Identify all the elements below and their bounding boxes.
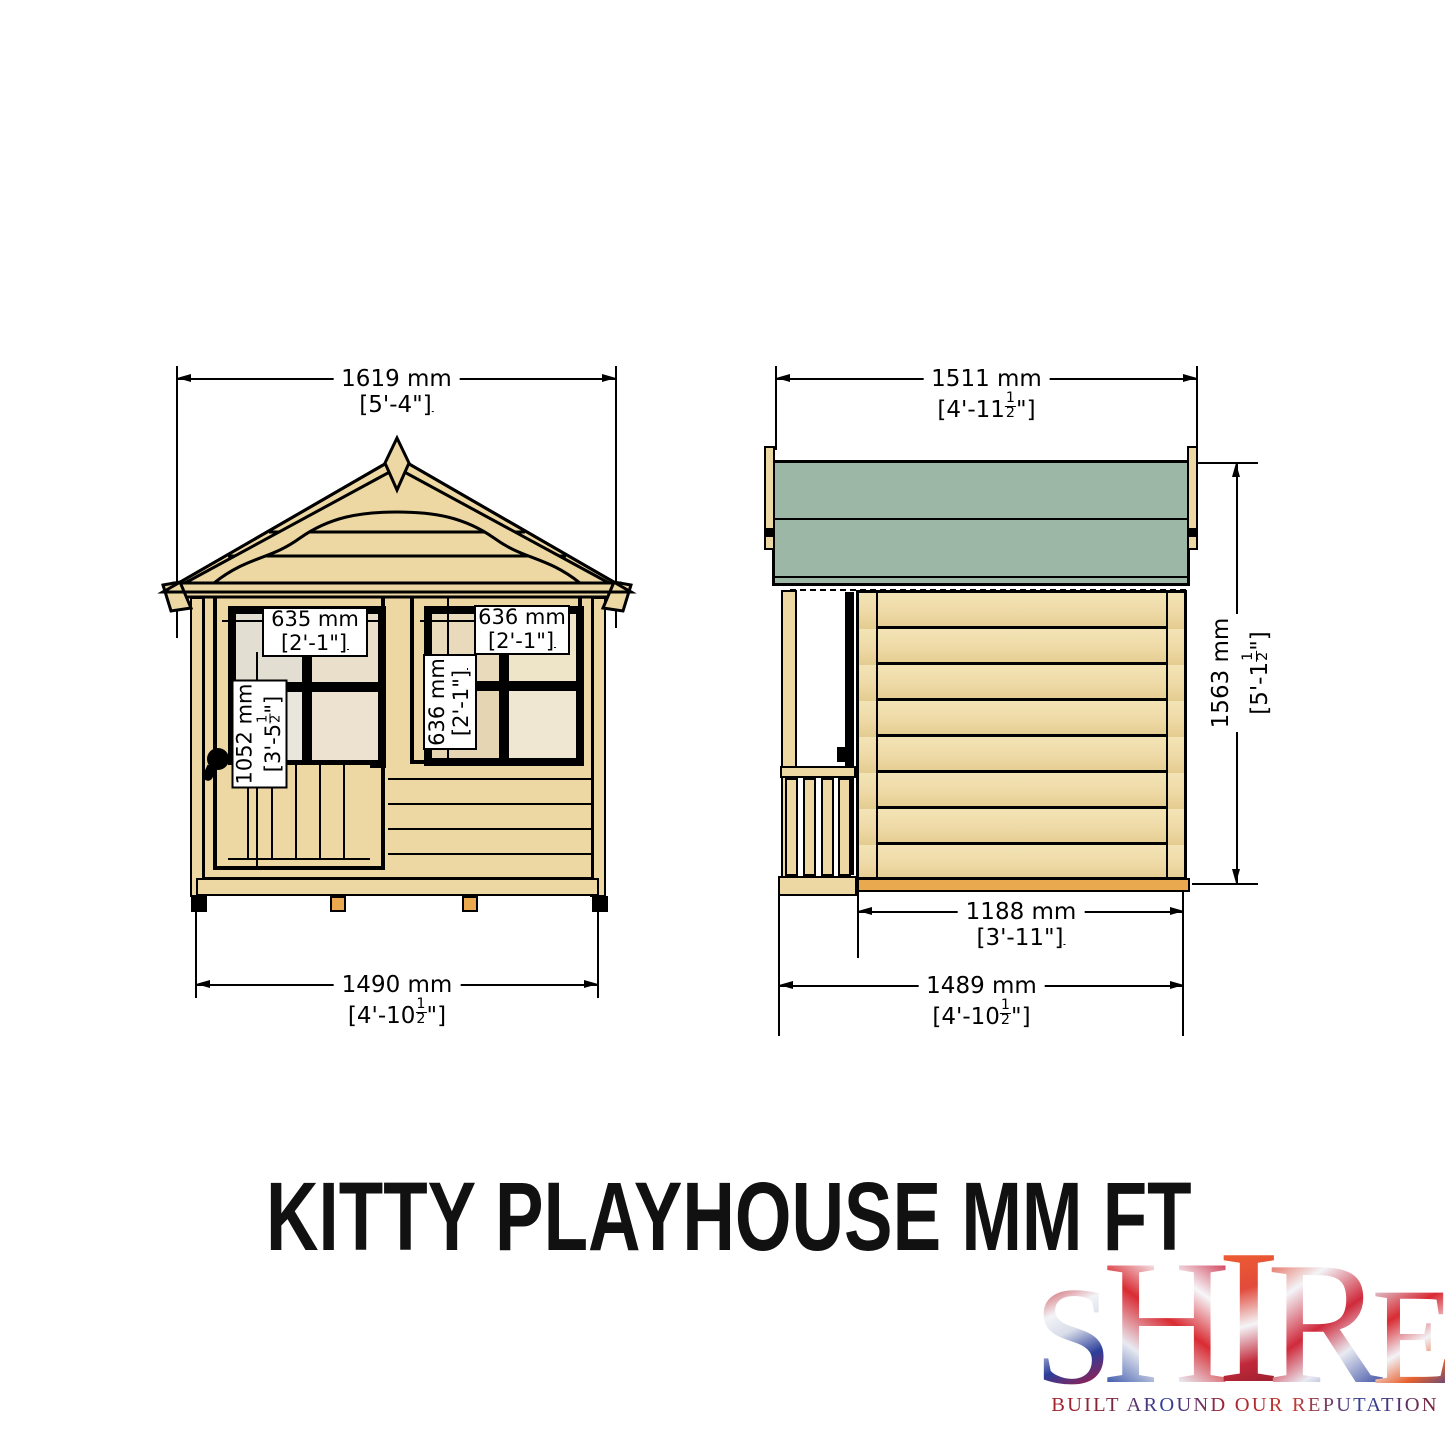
ft-fraction: 12 <box>1242 651 1270 662</box>
ft-frac-num <box>467 668 468 670</box>
ft-fraction <box>1064 944 1066 945</box>
cladding-joint <box>878 806 1166 809</box>
ext-line-side-bottom-left <box>778 890 780 1036</box>
door-plank-joint <box>343 765 345 858</box>
cladding-joint <box>878 662 1166 665</box>
ft-pre: [5'-1 <box>1247 662 1273 715</box>
cladding-joint <box>878 734 1166 737</box>
cladding-joint <box>878 698 1166 701</box>
side-floor-bearer <box>857 878 1190 892</box>
ft-frac-num <box>554 647 556 648</box>
ft-fraction: 12 <box>1005 392 1016 420</box>
cladding-joint <box>388 803 592 805</box>
shire-logo-word: S H I R E <box>1045 1244 1445 1390</box>
ft-pre: [4'-10 <box>932 1004 1000 1030</box>
label-ft: [3'-512"] <box>257 696 285 772</box>
front-foot-left <box>191 896 207 912</box>
ft-pre: [4'-11 <box>937 397 1005 423</box>
dim-ft-label: [4'-1112"] <box>932 392 1040 423</box>
door-window-pane <box>312 692 378 760</box>
bargeboard-mark <box>1189 528 1196 537</box>
ft-frac-den: 2 <box>1000 1014 1011 1028</box>
ft-post: "] <box>427 1003 447 1029</box>
logo-tagline: BUILT AROUND OUR REPUTATION <box>1045 1394 1445 1417</box>
dim-ft-label: [5'-112"] <box>1242 626 1273 720</box>
ft-frac-num <box>1064 944 1066 945</box>
cladding-joint <box>388 828 592 830</box>
label-door-height: 1052 mm [3'-512"] <box>232 680 288 789</box>
dim-mm-label: 1188 mm <box>958 899 1085 925</box>
roof-edge-joint <box>775 576 1187 578</box>
ft-post: "] <box>1011 1004 1031 1030</box>
ft-pre: [4'-10 <box>348 1003 416 1029</box>
logo-letter: E <box>1371 1285 1445 1390</box>
ft-post: "] <box>1247 631 1273 651</box>
ft-post: "] <box>261 696 285 714</box>
door-bottom-rail <box>228 858 370 860</box>
door-plank-joint <box>295 765 297 858</box>
front-roof <box>150 430 650 620</box>
label-ft: [2'-1"] <box>281 632 349 656</box>
porch-baluster <box>821 778 834 876</box>
label-window-width: 636 mm [2'-1"] <box>474 605 570 655</box>
ft-pre: [2'-1"] <box>449 670 473 736</box>
front-base-plate <box>196 878 599 896</box>
label-window-height: 636 mm [2'-1"] <box>423 654 477 750</box>
open-door-edge <box>837 747 847 762</box>
logo-letter: H <box>1102 1255 1231 1390</box>
door-plank-joint <box>319 765 321 858</box>
ft-pre: [3'-5 <box>261 724 285 772</box>
porch-baluster <box>785 778 798 876</box>
porch-rail-top <box>780 766 856 778</box>
ft-frac-den: 2 <box>271 714 283 724</box>
porch-baluster <box>838 778 851 876</box>
cladding-joint <box>388 853 592 855</box>
ext-line-side-height-top <box>1196 462 1258 464</box>
label-mm: 636 mm <box>478 606 566 630</box>
ft-fraction <box>554 647 556 648</box>
dim-ft-label: [4'-1012"] <box>343 998 451 1029</box>
label-mm: 636 mm <box>426 658 450 746</box>
cladding-joint <box>878 626 1166 629</box>
ft-fraction: 12 <box>257 714 283 724</box>
front-foot <box>462 896 478 912</box>
front-foot-right <box>592 896 608 912</box>
label-ft: [2'-1"] <box>450 668 474 736</box>
porch-base <box>778 876 857 896</box>
ft-frac-num <box>347 649 349 650</box>
ext-line-side-height-bottom <box>1192 883 1258 885</box>
label-mm: 1052 mm <box>234 683 258 784</box>
eave-fascia <box>174 583 620 597</box>
dim-mm-label: 1490 mm <box>334 972 461 998</box>
side-roof <box>772 460 1190 586</box>
ft-frac-num <box>432 411 434 412</box>
dim-mm-label: 1563 mm <box>1208 610 1234 737</box>
dim-ft-label: [5'-4"] <box>354 392 438 418</box>
label-ft: [2'-1"] <box>488 630 556 654</box>
label-mm: 635 mm <box>271 608 359 632</box>
dim-mm-label: 1511 mm <box>923 366 1050 392</box>
dim-mm-label: 1619 mm <box>333 366 460 392</box>
shire-logo: S H I R E BUILT AROUND OUR REPUTATION <box>1045 1244 1445 1417</box>
logo-letter: S <box>1034 1284 1112 1390</box>
ft-fraction <box>347 649 349 650</box>
ft-fraction <box>432 411 434 412</box>
ft-fraction: 12 <box>1000 999 1011 1027</box>
dim-ft-label: [4'-1012"] <box>927 999 1035 1030</box>
porch-baluster <box>803 778 816 876</box>
roof-sheet-joint <box>775 518 1187 520</box>
ft-fraction <box>467 668 468 670</box>
ft-fraction: 12 <box>415 998 426 1026</box>
cladding-joint <box>878 842 1166 845</box>
ft-frac-den: 2 <box>1005 407 1016 421</box>
label-door-window-width: 635 mm [2'-1"] <box>262 607 368 657</box>
bargeboard-mark <box>766 528 773 537</box>
drawing-sheet: 1619 mm [5'-4"] 1490 mm [4'-1012"] <box>0 0 1445 1445</box>
ft-pre: [3'-11"] <box>976 925 1063 951</box>
corner-board-joint <box>1166 592 1168 878</box>
ft-pre: [5'-4"] <box>359 392 431 418</box>
front-foot <box>330 896 346 912</box>
ft-pre: [2'-1"] <box>488 629 554 653</box>
ft-frac-den: 2 <box>415 1013 426 1027</box>
dim-mm-label: 1489 mm <box>918 973 1045 999</box>
dim-ft-label: [3'-11"] <box>971 925 1070 951</box>
ft-frac-den: 2 <box>1257 651 1271 662</box>
ft-post: "] <box>1016 397 1036 423</box>
cladding-joint <box>388 778 592 780</box>
window-pane <box>509 691 576 758</box>
logo-letter: R <box>1267 1257 1384 1390</box>
ext-line-side-wall-left <box>857 890 859 958</box>
cladding-joint <box>878 770 1166 773</box>
ft-pre: [2'-1"] <box>281 631 347 655</box>
